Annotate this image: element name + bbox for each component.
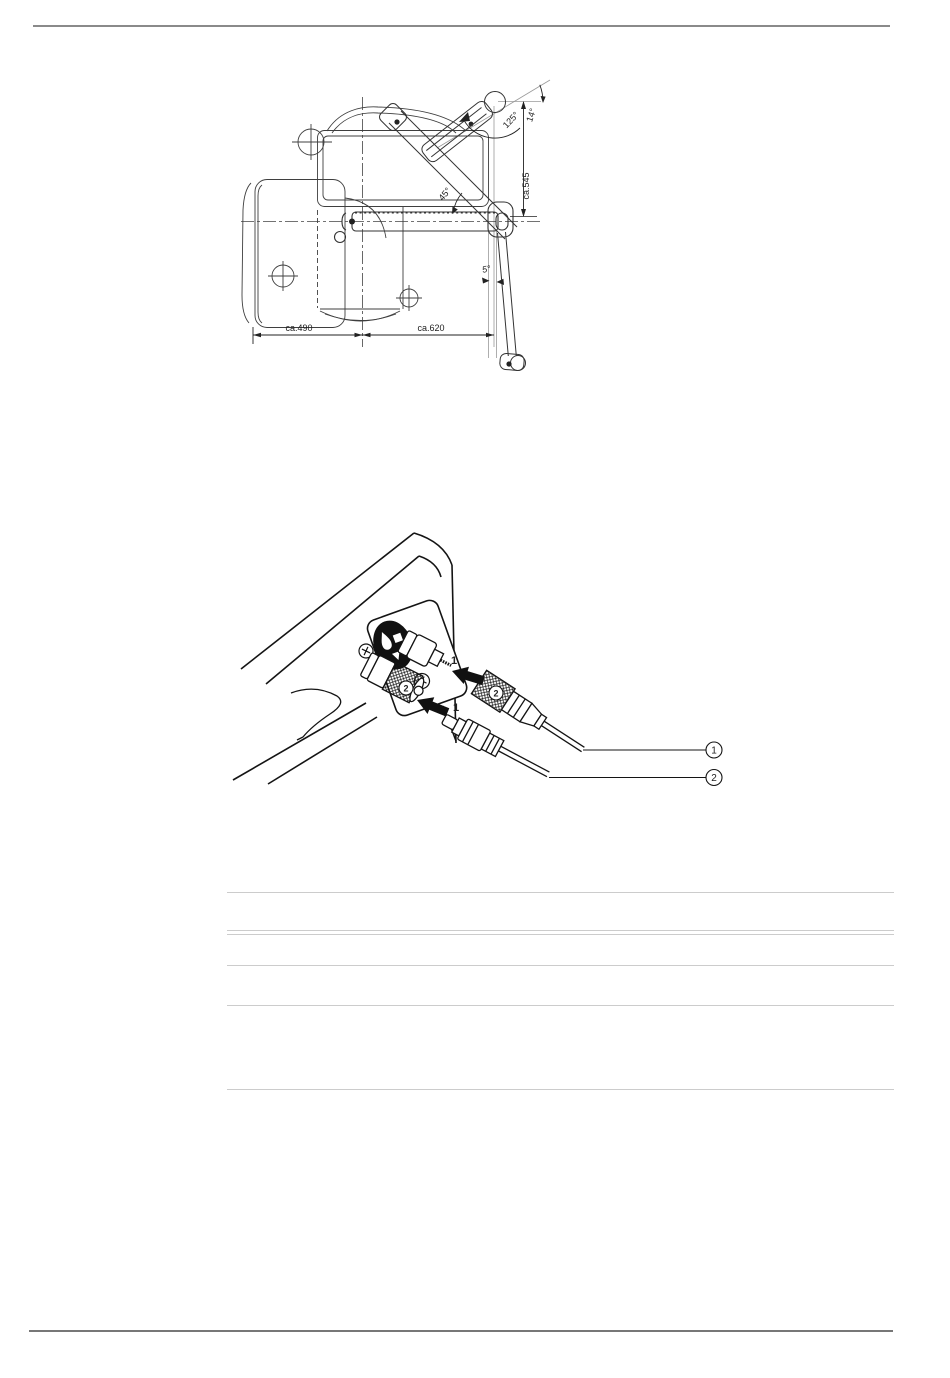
dim-490-label: ca.490 — [285, 323, 312, 333]
dim-620-label: ca.620 — [417, 323, 444, 333]
header-rule — [33, 25, 890, 27]
document-page: 125° 14° ca.545 45° 5° ca.490 ca.620 — [0, 0, 950, 1378]
machine-body-outline — [242, 107, 489, 328]
angle-5-label: 5° — [481, 263, 492, 275]
jack-lower-label: 2 — [403, 684, 408, 694]
lower-arm — [498, 232, 526, 371]
callout-lines — [549, 750, 706, 778]
table-rule-6 — [227, 1089, 894, 1090]
horizontal-arm — [335, 202, 514, 243]
table-rule-5 — [227, 1005, 894, 1006]
table-rule-3 — [227, 934, 894, 935]
callout-2-label: 2 — [711, 773, 717, 784]
figure1-dimension-drawing: 125° 14° ca.545 45° 5° ca.490 ca.620 — [238, 73, 573, 398]
figure2-connection-drawing: 2 1 2 — [228, 513, 733, 803]
angle-14-label: 14° — [524, 107, 538, 123]
callout-1-label: 1 — [711, 746, 717, 757]
footer-rule — [29, 1330, 893, 1332]
table-rule-1 — [227, 892, 894, 893]
jack-upper-label: 1 — [451, 655, 457, 667]
table-rule-2 — [227, 930, 894, 931]
dim-545-label: ca.545 — [521, 172, 531, 199]
cable-upper-ring-label: 2 — [493, 689, 498, 699]
table-rule-4 — [227, 965, 894, 966]
angle-125-label: 125° — [501, 109, 521, 130]
cable-plug-lower-label: 1 — [453, 702, 459, 714]
